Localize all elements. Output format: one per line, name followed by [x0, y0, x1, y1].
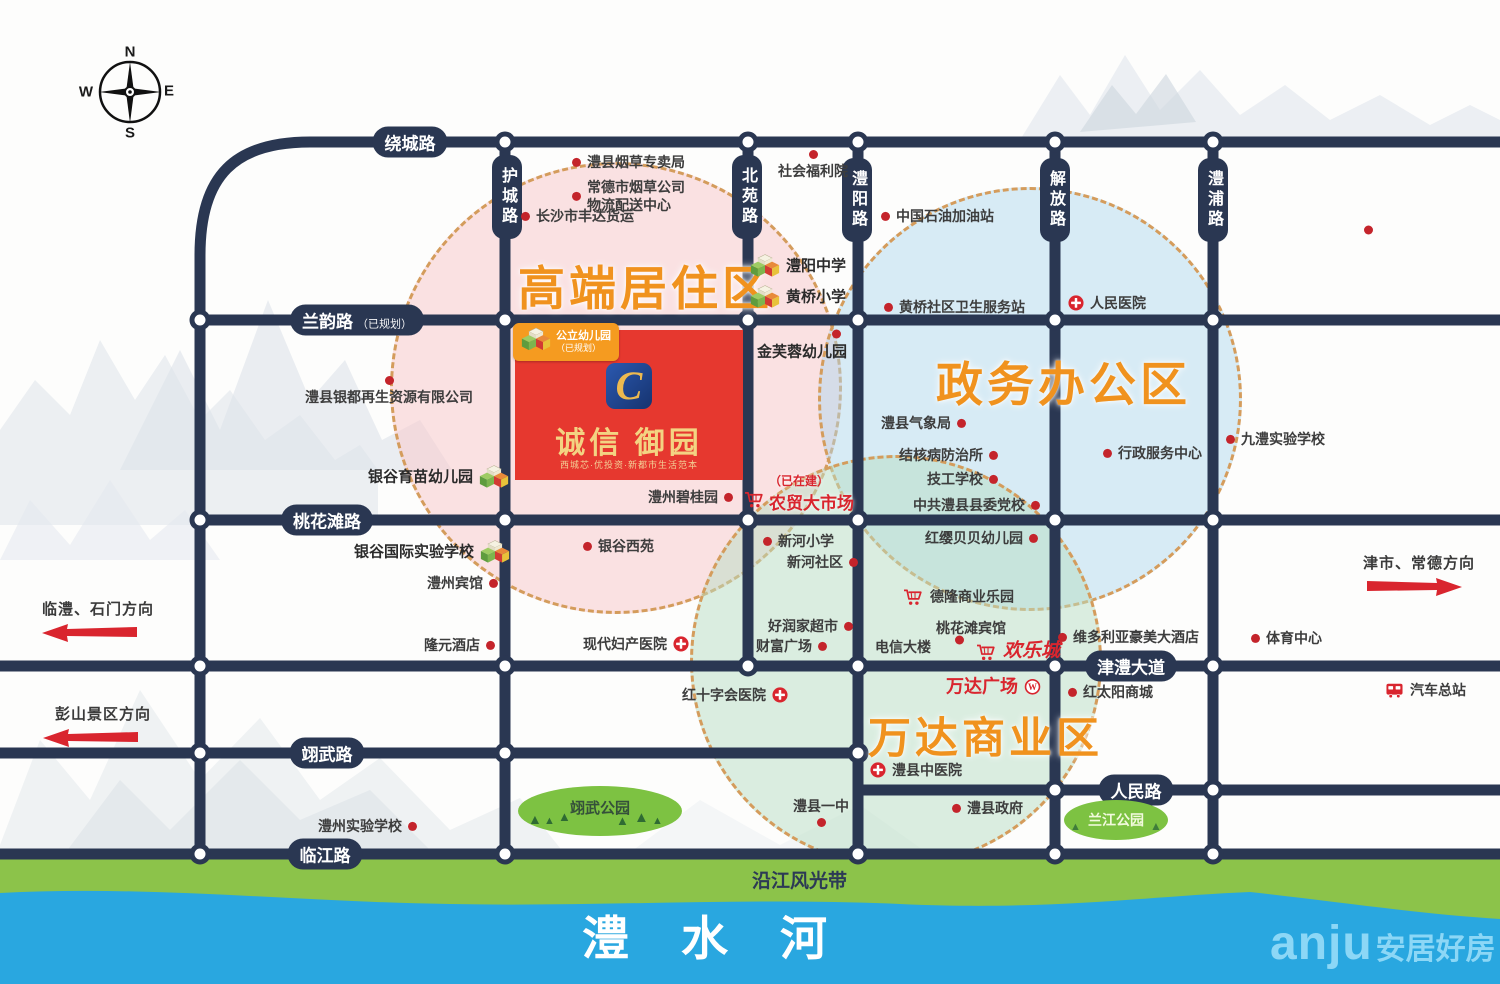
- direction-linli-shimen: 临澧、石门方向: [42, 598, 154, 643]
- poi: 银谷西苑: [583, 537, 654, 555]
- tree-icon: ▲: [544, 816, 555, 827]
- poi-label: 结核病防治所: [899, 446, 983, 464]
- intersection-dot: [497, 658, 513, 674]
- poi-label: 银谷西苑: [598, 537, 654, 555]
- road-name: 人民路: [1111, 778, 1162, 803]
- poi-label: 行政服务中心: [1118, 444, 1202, 462]
- poi-label: 银谷育苗幼儿园: [368, 467, 473, 487]
- intersection-dot: [1205, 512, 1221, 528]
- intersection-dot: [497, 134, 513, 150]
- direction-label: 津市、常德方向: [1363, 552, 1475, 573]
- poi-label: 澧县一中: [793, 797, 849, 815]
- project-name: 诚信 御园: [515, 418, 743, 462]
- intersection-dot: [1205, 658, 1221, 674]
- school-building-icon: [521, 326, 551, 358]
- shopping-cart-icon: [744, 490, 765, 509]
- road-label: 桃花滩路: [281, 505, 373, 536]
- poi-label: 澧县烟草专卖局: [587, 153, 685, 171]
- school-building-icon: [750, 284, 780, 311]
- hospital-cross-icon: [1068, 295, 1084, 311]
- intersection-dot: [850, 658, 866, 674]
- road-name: 澧浦路: [1201, 170, 1225, 230]
- location-dot-icon: [763, 537, 772, 546]
- poi-label: 德隆商业乐园: [930, 588, 1014, 606]
- intersection-dot: [850, 745, 866, 761]
- location-dot-icon: [817, 818, 826, 827]
- intersection-dot: [192, 658, 208, 674]
- compass-rose-icon: [94, 57, 166, 129]
- location-dot-icon: [408, 822, 417, 831]
- poi: 体育中心: [1251, 629, 1322, 647]
- shopping-cart-icon: [976, 643, 997, 662]
- poi-label: 技工学校: [927, 470, 983, 488]
- poi: 德隆商业乐园: [903, 588, 1014, 607]
- location-dot-icon: [1251, 634, 1260, 643]
- road-name: 澧阳路: [845, 170, 869, 230]
- intersection-dot: [497, 745, 513, 761]
- location-dot-icon: [832, 330, 841, 339]
- poi: 红十字会医院: [682, 686, 788, 704]
- intersection-dot: [192, 312, 208, 328]
- poi-label: 新河社区: [787, 553, 843, 571]
- intersection-dot: [1047, 312, 1063, 328]
- poi-label: 好润家超市: [768, 617, 838, 635]
- location-dot-icon: [521, 212, 530, 221]
- intersection-dot: [1205, 134, 1221, 150]
- intersection-dot: [1047, 846, 1063, 862]
- location-dot-icon: [818, 642, 827, 651]
- intersection-dot: [850, 846, 866, 862]
- road-label: 兰韵路（已规划）: [290, 305, 424, 336]
- road-name: 津澧大道: [1097, 654, 1165, 679]
- poi: [955, 636, 964, 645]
- poi: 新河小学: [763, 532, 834, 550]
- school-building-icon: [480, 539, 510, 566]
- location-dot-icon: [809, 150, 818, 159]
- location-dot-icon: [989, 475, 998, 484]
- tree-icon: ▲: [634, 810, 649, 825]
- road-name: 桃花滩路: [293, 508, 361, 533]
- direction-jinshi-changde: 津市、常德方向: [1363, 552, 1475, 597]
- road-label: 澧浦路: [1198, 158, 1228, 242]
- poi-label: 社会福利院: [778, 162, 848, 180]
- location-dot-icon: [884, 303, 893, 312]
- watermark-latin: anju: [1270, 916, 1373, 971]
- poi-label: 银谷国际实验学校: [354, 542, 474, 562]
- tree-icon: ▲: [528, 812, 542, 826]
- road-label: 绕城路: [373, 127, 448, 158]
- poi-label: 九澧实验学校: [1241, 430, 1325, 448]
- tree-icon: ▲: [558, 810, 571, 823]
- poi-label: 长沙市丰达货运: [536, 207, 634, 225]
- location-dot-icon: [489, 579, 498, 588]
- poi-label: 红缨贝贝幼儿园: [925, 529, 1023, 547]
- svg-text:W: W: [1028, 682, 1037, 692]
- road-label: 护城路: [492, 155, 522, 239]
- wanda-logo-icon: W: [1024, 678, 1041, 695]
- poi: 澧县气象局: [881, 414, 966, 432]
- poi-label: 体育中心: [1266, 629, 1322, 647]
- poi: 电信大楼: [875, 638, 931, 656]
- zone-label-wanda: 万达商业区: [868, 704, 1103, 766]
- intersection-dot: [1047, 782, 1063, 798]
- poi-label: 隆元酒店: [424, 636, 480, 654]
- poi-label: 财富广场: [756, 637, 812, 655]
- poi: 中共澧县县委党校: [913, 496, 1040, 514]
- location-dot-icon: [881, 212, 890, 221]
- poi-label: 澧阳中学: [786, 256, 846, 276]
- poi: 澧州宾馆: [427, 574, 498, 592]
- right-arrow-icon: [1367, 577, 1462, 597]
- poi: 红太阳商城: [1068, 683, 1153, 701]
- location-dot-icon: [1103, 449, 1112, 458]
- road-name: 翊武路: [302, 741, 353, 766]
- zone-label-government: 政务办公区: [936, 346, 1191, 415]
- road-label: 津澧大道: [1085, 651, 1177, 682]
- park-yiwu: ▲ ▲ ▲ ▲ ▲ ▲ 翊武公园: [518, 786, 682, 836]
- location-dot-icon: [849, 558, 858, 567]
- poi-label: 电信大楼: [875, 638, 931, 656]
- poi-label: 汽车总站: [1410, 681, 1466, 699]
- zone-label-residential: 高端居住区: [518, 250, 773, 319]
- market-status: （已在建）: [744, 472, 854, 489]
- left-arrow-icon: [42, 623, 137, 643]
- poi: 桃花滩宾馆: [936, 619, 1006, 637]
- intersection-dot: [1205, 782, 1221, 798]
- location-dot-icon: [955, 636, 964, 645]
- hospital-cross-icon: [870, 762, 886, 778]
- intersection-dot: [192, 745, 208, 761]
- intersection-dot: [850, 134, 866, 150]
- intersection-dot: [850, 312, 866, 328]
- intersection-dot: [192, 512, 208, 528]
- road-label: 临江路: [288, 839, 363, 870]
- project-logo: C: [606, 363, 652, 409]
- location-dot-icon: [724, 493, 733, 502]
- anju-watermark: anju 安居好房: [1270, 916, 1496, 971]
- park-label: 兰江公园: [1088, 810, 1144, 830]
- location-dot-icon: [583, 542, 592, 551]
- compass-west: W: [79, 84, 93, 101]
- location-dot-icon: [385, 376, 394, 385]
- poi-label: 现代妇产医院: [583, 635, 667, 653]
- poi: 澧县烟草专卖局: [572, 153, 685, 171]
- poi-label: 澧州宾馆: [427, 574, 483, 592]
- compass: N S W E: [60, 30, 210, 160]
- poi-label: 黄桥小学: [786, 287, 846, 307]
- poi: 万达广场W: [946, 675, 1041, 698]
- location-dot-icon: [1226, 435, 1235, 444]
- poi: 澧州碧桂园: [648, 488, 733, 506]
- poi: 好润家超市: [768, 617, 853, 635]
- hospital-cross-icon: [772, 687, 788, 703]
- poi-label: 澧县政府: [967, 799, 1023, 817]
- poi: 澧阳中学: [750, 253, 846, 280]
- poi-label: 中共澧县县委党校: [913, 496, 1025, 514]
- poi: 结核病防治所: [899, 446, 998, 464]
- poi: 技工学校: [927, 470, 998, 488]
- hospital-cross-icon: [673, 636, 689, 652]
- location-dot-icon: [486, 641, 495, 650]
- poi: 财富广场: [756, 637, 827, 655]
- school-building-icon: [750, 253, 780, 280]
- intersection-dot: [1205, 846, 1221, 862]
- poi: 金芙蓉幼儿园: [757, 342, 847, 362]
- intersection-dot: [740, 512, 756, 528]
- location-map: 沿江风光带 澧水河 anju 安居好房 高端居住区 政务办公区 万达商业区 绕城…: [0, 0, 1500, 984]
- poi-label: 黄桥社区卫生服务站: [899, 298, 1025, 316]
- school-building-icon: [521, 326, 551, 353]
- poi-label: 万达广场: [946, 675, 1018, 698]
- planned-kindergarten-badge: 公立幼儿园 （已规划）: [513, 323, 619, 361]
- road-name: 兰韵路: [302, 308, 353, 333]
- poi: 澧县政府: [952, 799, 1023, 817]
- poi-label: 维多利亚豪美大酒店: [1073, 628, 1199, 646]
- poi: 新河社区: [787, 553, 858, 571]
- road-name: 北苑路: [735, 167, 759, 227]
- poi: [1364, 226, 1373, 235]
- road-label: 翊武路: [290, 738, 365, 769]
- poi: 澧州实验学校: [318, 817, 417, 835]
- school-building-icon: [479, 464, 509, 491]
- project-logo-letter: C: [616, 366, 643, 406]
- poi: 汽车总站: [1385, 681, 1466, 699]
- poi: 九澧实验学校: [1226, 430, 1325, 448]
- location-dot-icon: [989, 451, 998, 460]
- poi: 红缨贝贝幼儿园: [925, 529, 1038, 547]
- shopping-cart-icon: [744, 490, 765, 514]
- poi-label: 中国石油加油站: [896, 207, 994, 225]
- direction-pengshan: 彭山景区方向: [55, 703, 151, 748]
- poi: 维多利亚豪美大酒店: [1058, 628, 1199, 646]
- intersection-dot: [497, 312, 513, 328]
- poi: 长沙市丰达货运: [521, 207, 634, 225]
- poi-label: 澧州实验学校: [318, 817, 402, 835]
- tree-icon: ▲: [652, 816, 663, 827]
- road-name: 解放路: [1043, 170, 1067, 230]
- poi-label: 新河小学: [778, 532, 834, 550]
- poi-label: 红太阳商城: [1083, 683, 1153, 701]
- intersection-dot: [497, 846, 513, 862]
- location-dot-icon: [1068, 688, 1077, 697]
- poi: 黄桥社区卫生服务站: [884, 298, 1025, 316]
- poi-label: 人民医院: [1090, 294, 1146, 312]
- road-name: 护城路: [495, 167, 519, 227]
- poi: 行政服务中心: [1103, 444, 1202, 462]
- poi-label: 金芙蓉幼儿园: [757, 342, 847, 362]
- poi: 中国石油加油站: [881, 207, 994, 225]
- watermark-cn: 安居好房: [1376, 924, 1496, 968]
- intersection-dot: [1047, 134, 1063, 150]
- poi-label: 澧州碧桂园: [648, 488, 718, 506]
- badge-label: 公立幼儿园: [556, 330, 611, 343]
- poi: 黄桥小学: [750, 284, 846, 311]
- poi: 现代妇产医院: [583, 635, 689, 653]
- market-name: 农贸大市场: [769, 489, 854, 514]
- badge-sublabel: （已规划）: [556, 343, 611, 354]
- road-name: 临江路: [300, 842, 351, 867]
- location-dot-icon: [572, 192, 581, 201]
- location-dot-icon: [844, 622, 853, 631]
- project-block: 公立幼儿园 （已规划） C 诚信 御园 西城芯·优投资·新都市生活范本: [515, 330, 743, 480]
- intersection-dot: [1047, 512, 1063, 528]
- tree-icon: ▲: [1070, 822, 1081, 833]
- poi: [832, 330, 841, 339]
- poi: 欢乐城: [976, 640, 1060, 665]
- poi: 澧县一中: [793, 797, 849, 827]
- road-label: 北苑路: [732, 155, 762, 239]
- poi-label: 澧县银都再生资源有限公司: [305, 388, 473, 406]
- intersection-dot: [497, 512, 513, 528]
- location-dot-icon: [1031, 501, 1040, 510]
- shopping-cart-icon: [903, 588, 924, 607]
- poi: 澧县中医院: [870, 761, 962, 779]
- poi-label: 红十字会医院: [682, 686, 766, 704]
- poi: 隆元酒店: [424, 636, 495, 654]
- road-name-suffix: （已规划）: [357, 316, 412, 332]
- intersection-dot: [192, 846, 208, 862]
- direction-label: 彭山景区方向: [55, 703, 151, 724]
- location-dot-icon: [572, 158, 581, 167]
- poi: 人民医院: [1068, 294, 1146, 312]
- intersection-dot: [740, 134, 756, 150]
- left-arrow-icon: [43, 728, 138, 748]
- road-name: 绕城路: [385, 130, 436, 155]
- poi-label: 欢乐城: [1003, 640, 1060, 665]
- intersection-dot: [850, 512, 866, 528]
- location-dot-icon: [1364, 226, 1373, 235]
- poi-farmers-market: （已在建） 农贸大市场: [744, 472, 854, 514]
- intersection-dot: [740, 658, 756, 674]
- location-dot-icon: [957, 419, 966, 428]
- poi-label: 桃花滩宾馆: [936, 619, 1006, 637]
- poi-label: 澧县气象局: [881, 414, 951, 432]
- intersection-dot: [1205, 312, 1221, 328]
- road-label: 解放路: [1040, 158, 1070, 242]
- poi: 银谷国际实验学校: [354, 539, 510, 566]
- tree-icon: ▲: [616, 814, 629, 827]
- bus-station-icon: [1385, 682, 1404, 699]
- poi: 澧县银都再生资源有限公司: [305, 376, 473, 406]
- location-dot-icon: [952, 804, 961, 813]
- park-lanjiang: ▲ ▲ 兰江公园: [1064, 800, 1168, 840]
- riverside-belt-label: 沿江风光带: [752, 866, 847, 893]
- location-dot-icon: [1029, 534, 1038, 543]
- tree-icon: ▲: [1150, 820, 1162, 832]
- poi: 银谷育苗幼儿园: [368, 464, 509, 491]
- direction-label: 临澧、石门方向: [42, 598, 154, 619]
- poi: 社会福利院: [778, 150, 848, 180]
- project-tagline: 西城芯·优投资·新都市生活范本: [515, 458, 743, 471]
- location-dot-icon: [1058, 633, 1067, 642]
- river-name: 澧水河: [582, 900, 879, 969]
- poi-label: 澧县中医院: [892, 761, 962, 779]
